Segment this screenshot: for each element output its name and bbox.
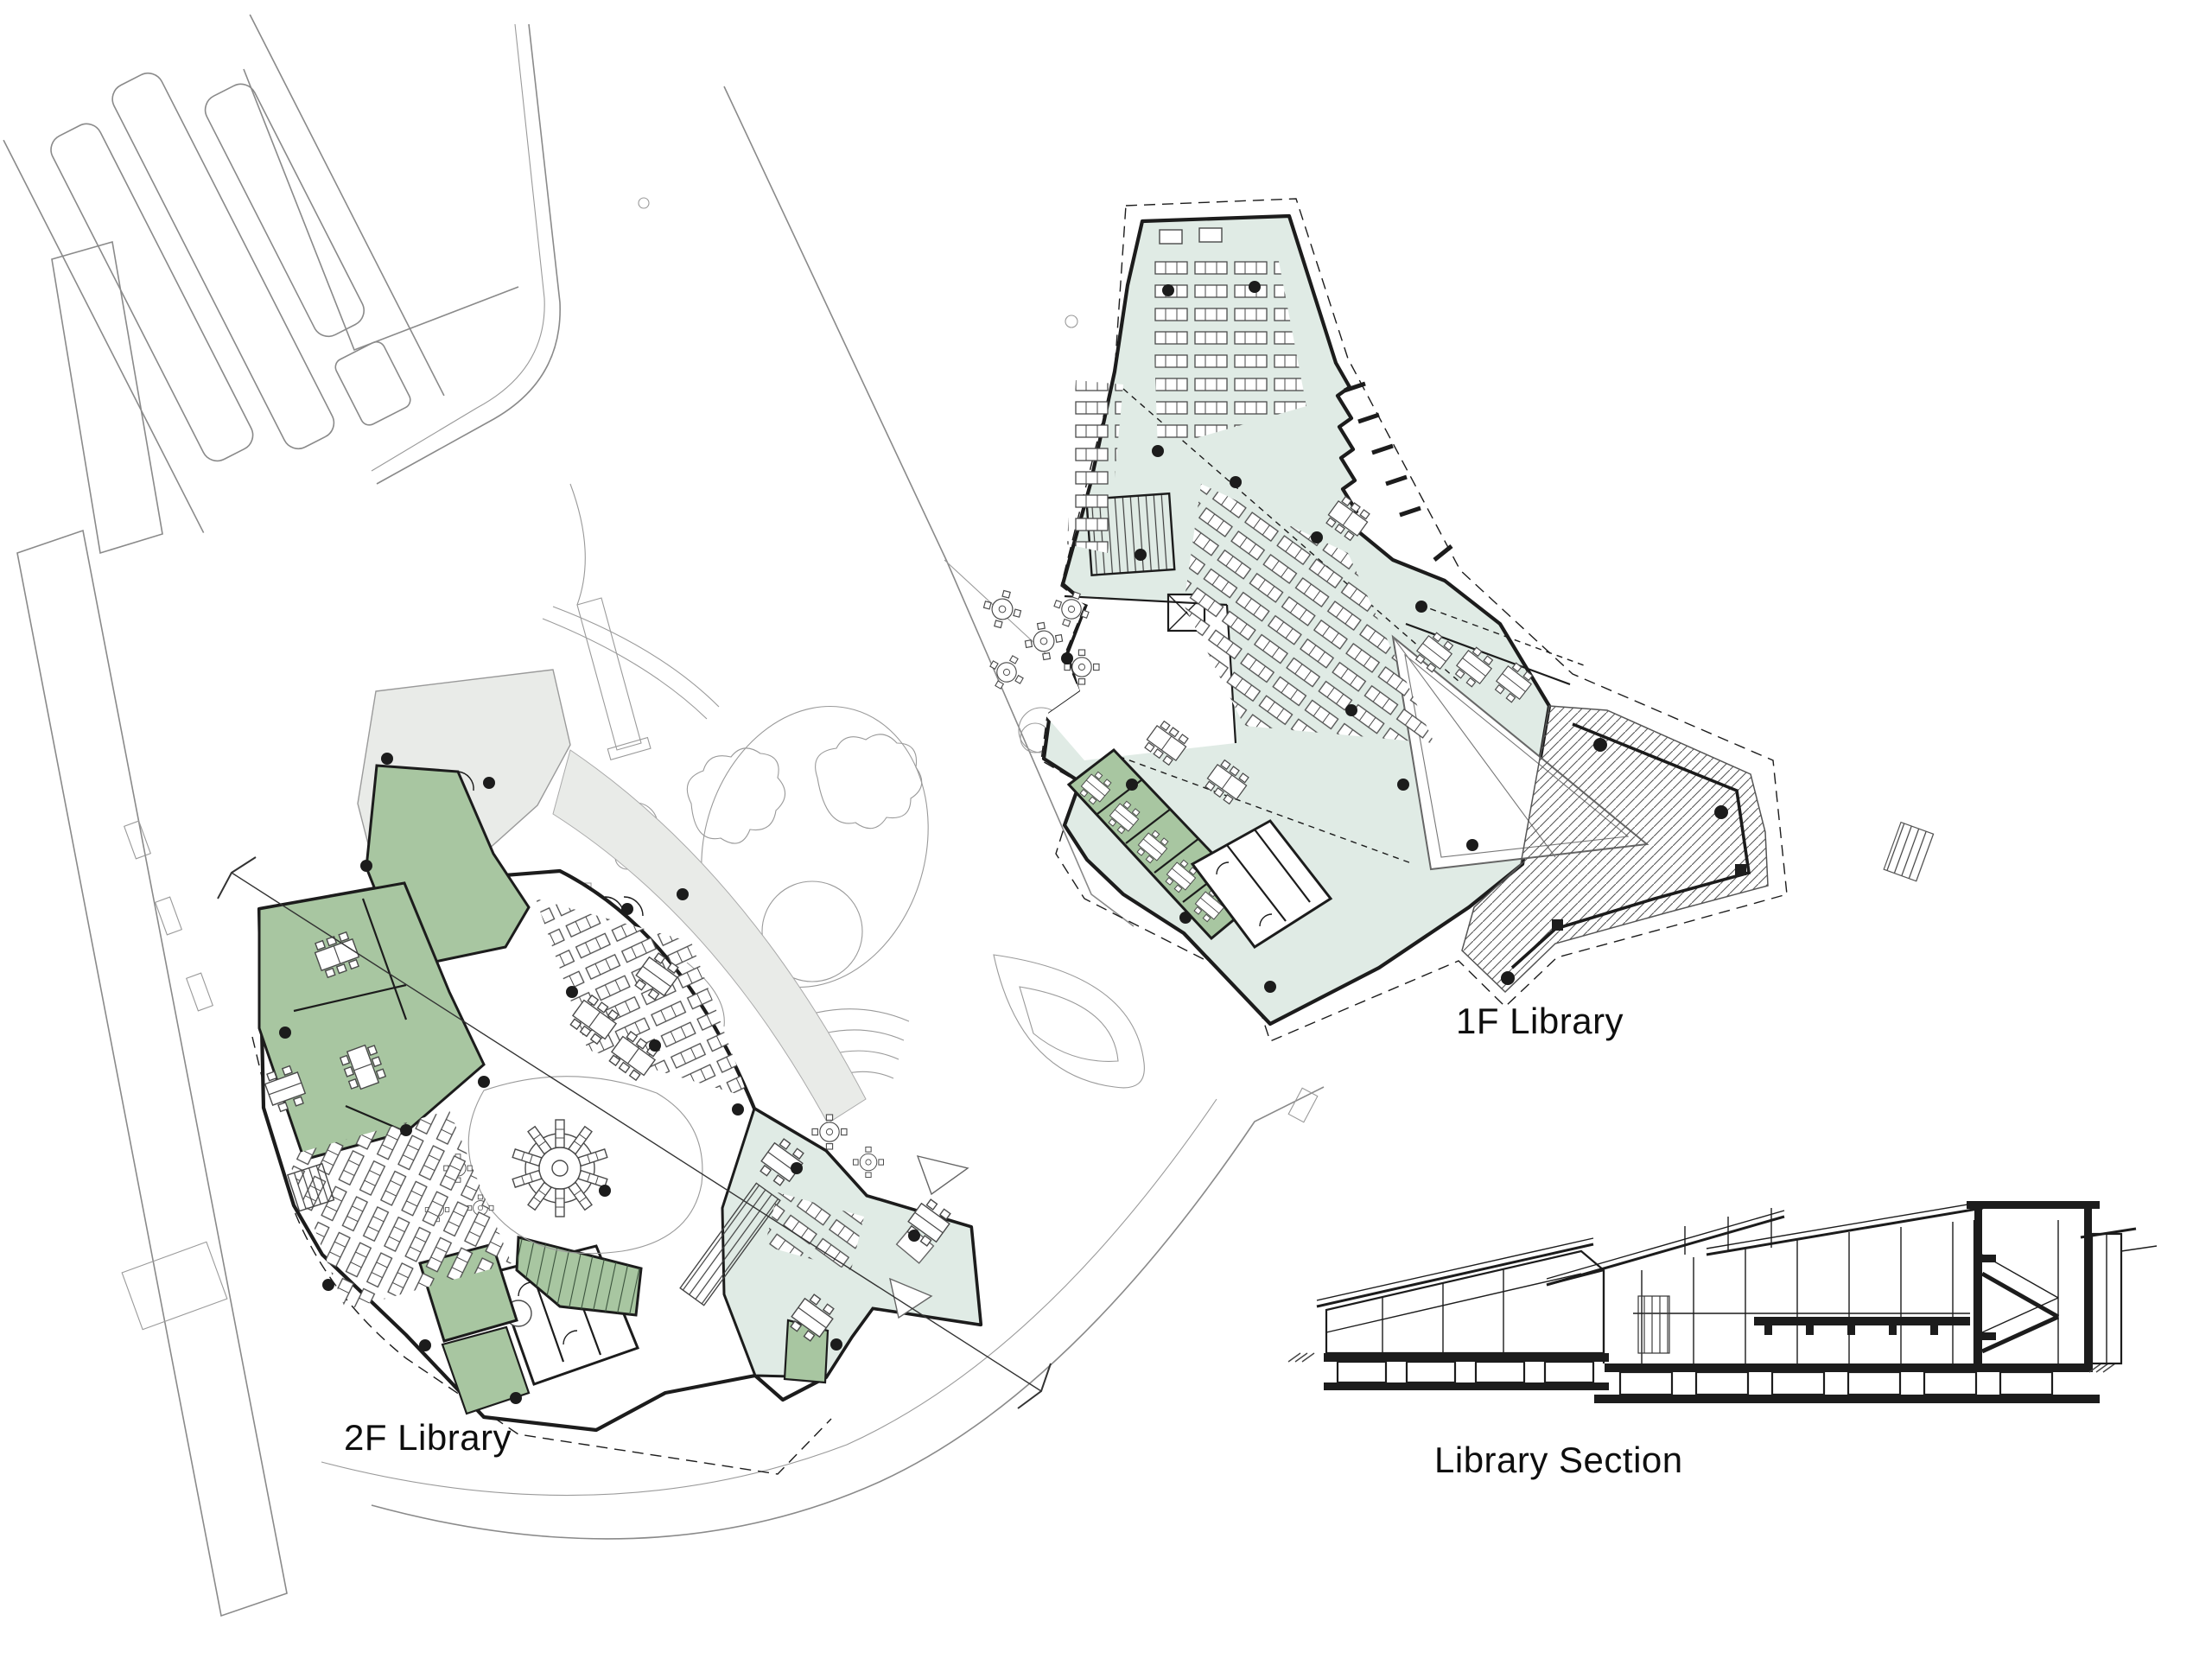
skylight xyxy=(918,1156,968,1194)
section-right-volume xyxy=(2081,1229,2157,1363)
section-main-hall xyxy=(1547,1202,1983,1363)
mezzanine-slab xyxy=(1754,1317,1970,1325)
grade-hatch xyxy=(2089,1363,2115,1372)
tree xyxy=(1065,315,1077,327)
architectural-drawing: 1F Library 2F Library Library Section xyxy=(0,0,2212,1659)
label-1f-library: 1F Library xyxy=(1456,1001,1624,1041)
counter xyxy=(1160,230,1182,244)
label-2f-library: 2F Library xyxy=(344,1417,512,1458)
label-library-section: Library Section xyxy=(1434,1440,1683,1480)
path-arc xyxy=(553,607,719,707)
grade-hatch xyxy=(1288,1353,1314,1362)
site-marker xyxy=(639,198,649,208)
deck-stair xyxy=(1884,823,1933,881)
section-drawing xyxy=(1288,1201,2157,1403)
counter xyxy=(1199,228,1222,242)
cul-de-sac xyxy=(994,955,1144,1088)
plan-2f xyxy=(218,670,1051,1474)
path-arc xyxy=(543,619,707,719)
road-edge xyxy=(244,69,518,350)
road-edge xyxy=(570,484,585,605)
foundation xyxy=(1288,1353,2115,1403)
section-stair-small xyxy=(1638,1296,1669,1353)
section-left-wing xyxy=(1317,1238,1604,1353)
drawing-sheet: 1F Library 2F Library Library Section xyxy=(0,0,2212,1659)
parking-lot-northwest xyxy=(3,15,450,533)
road-edge xyxy=(377,24,560,484)
plan-1f xyxy=(980,199,1934,1041)
section-stair-tower xyxy=(1967,1201,2100,1363)
road-edge xyxy=(372,24,544,471)
planting-blob xyxy=(687,748,785,843)
